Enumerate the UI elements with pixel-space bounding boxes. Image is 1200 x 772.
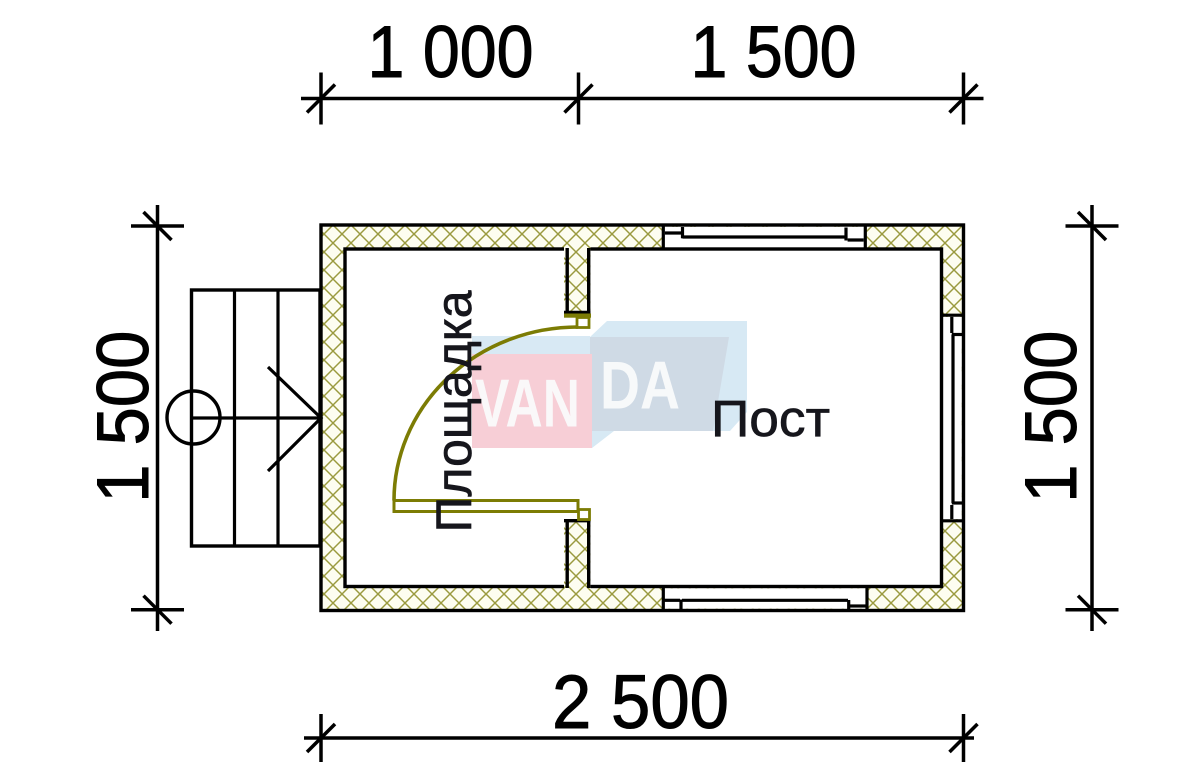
svg-text:DA: DA <box>600 348 680 424</box>
svg-text:1 000: 1 000 <box>368 12 534 93</box>
svg-text:Пост: Пост <box>711 390 830 447</box>
svg-text:1 500: 1 500 <box>691 12 857 93</box>
svg-text:1 500: 1 500 <box>83 331 164 503</box>
svg-text:VAN: VAN <box>475 366 580 442</box>
svg-text:Площадка: Площадка <box>426 290 482 532</box>
svg-text:1 500: 1 500 <box>1011 331 1092 503</box>
svg-text:2 500: 2 500 <box>552 660 729 745</box>
